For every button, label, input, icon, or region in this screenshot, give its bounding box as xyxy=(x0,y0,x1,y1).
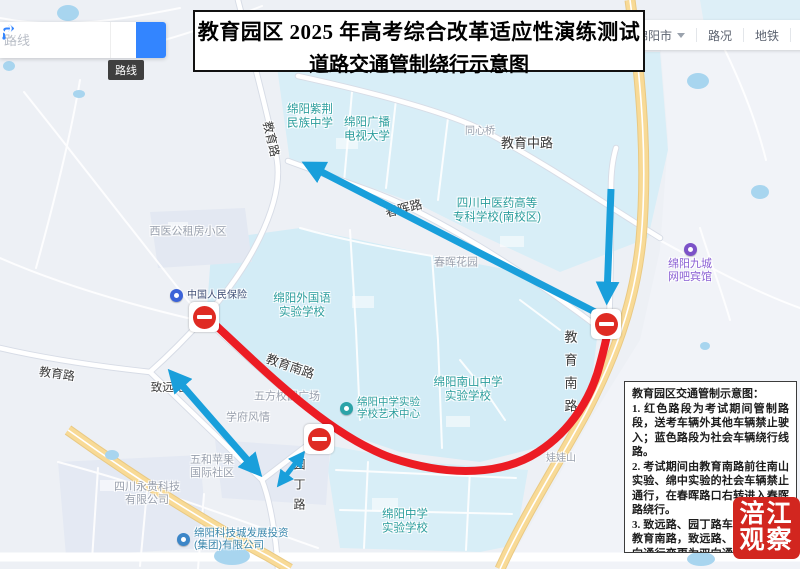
fujiang-watch-watermark: 涪江 观察 xyxy=(733,497,800,559)
map-label-tongxin-bridge: 同心桥 xyxy=(465,126,495,138)
map-app-window: 绵阳紫荆 民族中学 绵阳广播 电视大学 同心桥 教育中路 四川中医药高等 专科学… xyxy=(0,0,800,569)
map-label-wufang-plaza: 五方校园广场 xyxy=(254,391,320,404)
poi-label-jiucheng: 绵阳九城 网吧宾馆 xyxy=(668,258,712,283)
map-label-wuhe-community: 五和苹果 国际社区 xyxy=(190,454,234,480)
route-tooltip: 路线 xyxy=(108,60,144,80)
poi-label-foreign-language-school[interactable]: 绵阳外国语 实验学校 xyxy=(273,292,331,319)
poi-jiucheng-hotel[interactable]: 绵阳九城 网吧宾馆 xyxy=(668,243,712,283)
no-entry-sign-east xyxy=(591,309,621,339)
watermark-line1: 涪江 xyxy=(739,502,793,528)
poi-label-art-center: 绵阳中学实验 学校艺术中心 xyxy=(357,396,420,420)
toolbar-divider xyxy=(790,28,791,42)
road-label-jiaoyu-mid: 教育中路 xyxy=(501,135,553,150)
road-label-yuanding: 园丁路 xyxy=(293,458,305,518)
traffic-button[interactable]: 路况 xyxy=(708,27,732,44)
no-entry-sign-west xyxy=(189,302,219,332)
search-icon xyxy=(0,22,16,38)
road-label-zhiyuan: 致远路 xyxy=(151,382,186,396)
no-entry-sign-yuanding xyxy=(304,424,334,454)
watermark-line2: 观察 xyxy=(739,528,793,554)
road-label-jiaoyunan-vertical: 教育南路 xyxy=(564,330,577,422)
poi-pin-icon xyxy=(684,243,697,256)
search-button[interactable] xyxy=(136,22,166,58)
poi-art-center[interactable]: 绵阳中学实验 学校艺术中心 xyxy=(340,396,420,420)
metro-button[interactable]: 地铁 xyxy=(755,27,779,44)
title-box: 教育园区 2025 年高考综合改革适应性演练测试 道路交通管制绕行示意图 xyxy=(193,10,645,72)
poi-label-nanshan-school[interactable]: 绵阳南山中学 实验学校 xyxy=(434,376,503,403)
traffic-label: 路况 xyxy=(708,27,732,44)
search-bar xyxy=(0,22,166,58)
notice-title: 教育园区交通管制示意图： xyxy=(632,387,789,402)
poi-pin-icon xyxy=(170,289,183,302)
poi-pin-icon xyxy=(340,402,353,415)
search-input[interactable] xyxy=(0,22,110,58)
poi-label-zijing-school[interactable]: 绵阳紫荆 民族中学 xyxy=(287,103,333,130)
poi-pin-icon xyxy=(177,533,190,546)
poi-label-tcm-college[interactable]: 四川中医药高等 专科学校(南校区) xyxy=(453,197,541,224)
poi-label-kejicheng: 绵阳科技城发展投资 (集团)有限公司 xyxy=(194,527,289,551)
map-toolbar: 绵阳市 路况 地铁 工具箱 xyxy=(624,20,800,50)
map-label-xuefu: 学府风情 xyxy=(226,412,270,425)
route-button[interactable] xyxy=(110,22,136,58)
poi-label-mianzhong-school[interactable]: 绵阳中学 实验学校 xyxy=(382,508,428,535)
map-label-yonggui-company: 四川永贵科技 有限公司 xyxy=(114,481,180,507)
poi-label-renbao: 中国人民保险 xyxy=(187,290,247,302)
map-label-xiyi-housing: 西医公租房小区 xyxy=(150,226,227,239)
toolbar-divider xyxy=(743,28,744,42)
poi-label-broadcast-university[interactable]: 绵阳广播 电视大学 xyxy=(344,116,390,143)
poi-kejicheng[interactable]: 绵阳科技城发展投资 (集团)有限公司 xyxy=(177,527,289,551)
metro-label: 地铁 xyxy=(755,27,779,44)
page-title-line1: 教育园区 2025 年高考综合改革适应性演练测试 xyxy=(195,16,643,46)
toolbar-divider xyxy=(696,28,697,42)
map-label-chunhui-garden: 春晖花园 xyxy=(434,257,478,270)
page-title-line2: 道路交通管制绕行示意图 xyxy=(195,48,643,77)
map-label-wawashan: 娃娃山 xyxy=(546,453,576,465)
notice-item-1: 1. 红色路段为考试期间管制路段，送考车辆外其他车辆禁止驶入；蓝色路段为社会车辆… xyxy=(632,402,789,460)
poi-renbao[interactable]: 中国人民保险 xyxy=(170,289,247,302)
chevron-down-icon xyxy=(677,33,685,38)
